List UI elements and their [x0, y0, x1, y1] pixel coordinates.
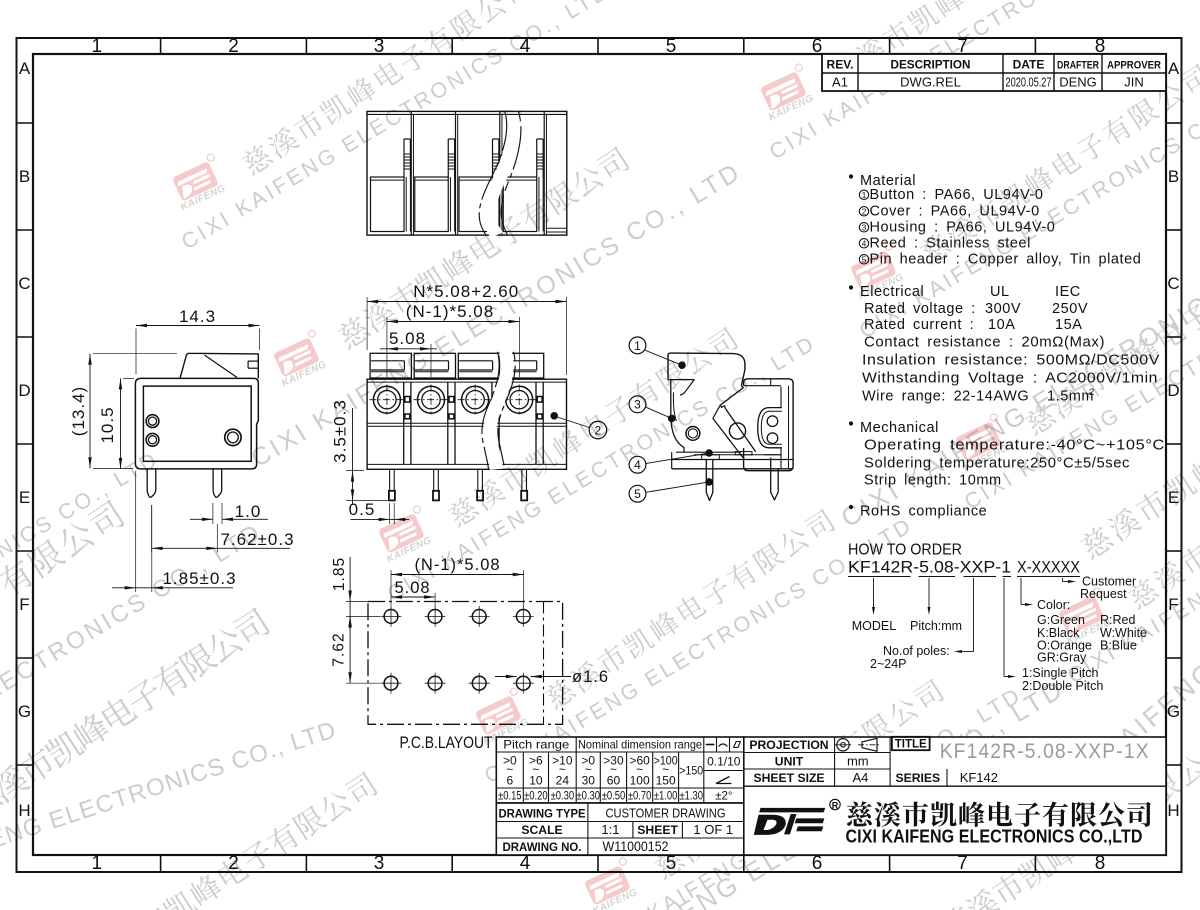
svg-text:6: 6 [812, 36, 823, 57]
svg-text:5.08: 5.08 [389, 329, 426, 348]
svg-text:0.5: 0.5 [349, 500, 376, 519]
svg-text:SHEET: SHEET [637, 823, 678, 837]
svg-text:>150: >150 [679, 764, 703, 778]
svg-text:15A: 15A [1055, 317, 1082, 333]
svg-text:DENG: DENG [1059, 75, 1097, 90]
svg-text:10.5: 10.5 [98, 406, 117, 443]
svg-text:IEC: IEC [1055, 284, 1081, 300]
svg-text:A: A [1168, 59, 1180, 78]
svg-text:MODEL: MODEL [852, 619, 897, 633]
svg-text:H: H [18, 801, 30, 820]
svg-text:250V: 250V [1052, 301, 1088, 317]
svg-text:±1.00: ±1.00 [654, 791, 678, 803]
svg-text:Reed : Stainless steel: Reed : Stainless steel [870, 236, 1031, 252]
svg-text:E: E [1168, 488, 1179, 507]
svg-text:Electrical: Electrical [860, 284, 924, 300]
svg-text:7: 7 [957, 853, 968, 874]
svg-text:R:Red: R:Red [1100, 613, 1135, 627]
svg-text:DWG.REL: DWG.REL [900, 75, 961, 90]
svg-text:JIN: JIN [1124, 75, 1144, 90]
svg-text:UNIT: UNIT [775, 755, 804, 769]
svg-text:±0.30: ±0.30 [577, 791, 601, 803]
svg-text:2: 2 [1089, 387, 1094, 398]
svg-text:Rated voltage :: Rated voltage : [864, 301, 976, 317]
svg-text:(13.4): (13.4) [69, 386, 88, 436]
svg-text:Contact resistance : 20mΩ(Max): Contact resistance : 20mΩ(Max) [864, 335, 1105, 351]
svg-text:B: B [1168, 167, 1179, 186]
svg-text:5: 5 [666, 853, 677, 874]
svg-text:10: 10 [529, 774, 543, 788]
svg-text:Nominal dimension range: Nominal dimension range [578, 738, 702, 752]
svg-text:Request: Request [1080, 587, 1127, 601]
svg-text:Pitch range: Pitch range [503, 738, 569, 752]
svg-text:1: 1 [634, 339, 641, 353]
svg-text:UL: UL [990, 284, 1010, 300]
svg-text:RoHS compliance: RoHS compliance [860, 504, 987, 520]
svg-text:Insulation resistance: 500MΩ/D: Insulation resistance: 500MΩ/DC500V [862, 353, 1160, 369]
svg-text:Soldering temperature:250°C±5/: Soldering temperature:250°C±5/5sec [864, 456, 1130, 472]
svg-text:3: 3 [374, 853, 385, 874]
svg-text:4: 4 [520, 36, 531, 57]
svg-text:60: 60 [607, 774, 621, 788]
svg-text:DATE: DATE [1013, 58, 1045, 72]
svg-text:7.62: 7.62 [331, 632, 348, 666]
svg-text:±0.15: ±0.15 [498, 791, 522, 803]
svg-text:2~24P: 2~24P [870, 657, 907, 671]
svg-text:Rated current :: Rated current : [864, 317, 974, 333]
svg-text:C: C [18, 274, 30, 293]
svg-text:±2°: ±2° [715, 791, 732, 803]
svg-text:KF142: KF142 [960, 770, 998, 785]
svg-text:150: 150 [656, 774, 676, 788]
svg-text:2:Double Pitch: 2:Double Pitch [1022, 679, 1103, 693]
svg-text:G: G [18, 702, 31, 721]
svg-text:SERIES: SERIES [895, 771, 940, 785]
svg-text:F: F [1168, 595, 1178, 614]
svg-text:3: 3 [374, 36, 385, 57]
svg-text:1.0: 1.0 [235, 502, 262, 521]
svg-text:1 OF 1: 1 OF 1 [693, 822, 733, 837]
svg-text:Operating temperature:-40°C~+1: Operating temperature:-40°C~+105°C [864, 438, 1165, 454]
svg-text:2: 2 [228, 853, 239, 874]
svg-text:2: 2 [228, 36, 239, 57]
svg-text:SCALE: SCALE [521, 823, 562, 837]
svg-text:1: 1 [92, 36, 103, 57]
svg-text:KF142R-5.08-XXP-1: KF142R-5.08-XXP-1 [848, 558, 1011, 577]
svg-text:HOW TO ORDER: HOW TO ORDER [848, 542, 962, 559]
svg-text:DRAWING TYPE: DRAWING TYPE [499, 807, 586, 821]
svg-text:A: A [19, 59, 31, 78]
svg-text:D: D [1167, 381, 1179, 400]
svg-text:100: 100 [630, 774, 650, 788]
svg-text:A1: A1 [832, 75, 848, 90]
svg-text:KF142R-5.08-XXP-1X: KF142R-5.08-XXP-1X [940, 740, 1150, 763]
svg-text:±0.30: ±0.30 [551, 791, 575, 803]
svg-text:DRAWING NO.: DRAWING NO. [503, 840, 582, 854]
svg-text:CIXI KAIFENG ELECTRONICS CO.,L: CIXI KAIFENG ELECTRONICS CO.,LTD [846, 826, 1143, 847]
svg-text:E: E [19, 488, 30, 507]
svg-text:D: D [18, 381, 30, 400]
svg-text:(N-1)*5.08: (N-1)*5.08 [414, 556, 500, 574]
svg-text:SHEET SIZE: SHEET SIZE [753, 771, 824, 785]
svg-text:7.62±0.3: 7.62±0.3 [220, 530, 294, 549]
svg-text:CUSTOMER DRAWING: CUSTOMER DRAWING [606, 806, 726, 821]
svg-text:1:Single Pitch: 1:Single Pitch [1022, 666, 1098, 680]
svg-text:APPROVER: APPROVER [1107, 60, 1161, 72]
svg-text:X-XXXXX: X-XXXXX [1017, 558, 1080, 577]
svg-text:±1.30: ±1.30 [679, 791, 703, 803]
svg-text:2: 2 [595, 424, 602, 438]
svg-text:Strip length: 10mm: Strip length: 10mm [864, 473, 1002, 489]
svg-text:5: 5 [666, 36, 677, 57]
svg-text:Button : PA66, UL94V-0: Button : PA66, UL94V-0 [870, 187, 1044, 203]
svg-text:3: 3 [862, 222, 867, 232]
svg-text:Cover : PA66, UL94V-0: Cover : PA66, UL94V-0 [870, 204, 1040, 220]
svg-text:2: 2 [862, 206, 867, 216]
svg-text:GR:Gray: GR:Gray [1037, 651, 1087, 665]
svg-text:1.85±0.3: 1.85±0.3 [162, 569, 236, 588]
svg-text:5: 5 [634, 487, 641, 501]
svg-text:DRAFTER: DRAFTER [1057, 60, 1099, 72]
svg-text:ø1.6: ø1.6 [572, 668, 609, 686]
svg-text:±0.50: ±0.50 [602, 791, 626, 803]
svg-text:1.85: 1.85 [331, 557, 348, 591]
svg-text:1: 1 [862, 190, 867, 200]
svg-text:±0.20: ±0.20 [524, 791, 548, 803]
svg-text:Color:: Color: [1037, 598, 1070, 612]
svg-text:F: F [19, 595, 29, 614]
svg-text:G: G [1167, 702, 1180, 721]
svg-text:4: 4 [862, 238, 867, 248]
svg-text:6: 6 [506, 774, 513, 788]
svg-text:30: 30 [582, 774, 596, 788]
svg-text:±0.70: ±0.70 [628, 791, 652, 803]
svg-text:4: 4 [520, 853, 531, 874]
svg-text:A4: A4 [852, 770, 868, 785]
svg-text:1:1: 1:1 [601, 822, 619, 837]
svg-text:DESCRIPTION: DESCRIPTION [891, 58, 971, 72]
svg-text:3: 3 [634, 398, 641, 412]
svg-text:1.5mm: 1.5mm [1047, 389, 1094, 405]
svg-text:1: 1 [92, 853, 103, 874]
svg-text:300V: 300V [985, 301, 1021, 317]
svg-text:10A: 10A [988, 317, 1015, 333]
svg-text:Housing : PA66, UL94V-0: Housing : PA66, UL94V-0 [870, 220, 1056, 236]
svg-text:TITLE: TITLE [895, 739, 927, 751]
svg-text:PROJECTION: PROJECTION [749, 738, 828, 752]
svg-text:5: 5 [862, 254, 867, 264]
svg-text:Pitch:mm: Pitch:mm [910, 619, 962, 633]
svg-text:6: 6 [812, 853, 823, 874]
svg-text:5.08: 5.08 [394, 579, 430, 597]
svg-text:B:Blue: B:Blue [1100, 639, 1137, 653]
svg-text:G:Green: G:Green [1037, 613, 1085, 627]
svg-text:8: 8 [1095, 853, 1106, 874]
svg-text:2020.05.27: 2020.05.27 [1006, 76, 1052, 90]
svg-text:Mechanical: Mechanical [860, 420, 939, 436]
svg-text:R: R [832, 800, 839, 810]
svg-text:0.1/10: 0.1/10 [707, 755, 741, 769]
svg-text:24: 24 [556, 774, 570, 788]
svg-text:REV.: REV. [827, 58, 854, 72]
svg-text:W11000152: W11000152 [603, 839, 669, 854]
svg-text:Withstanding Voltage : AC2000V: Withstanding Voltage : AC2000V/1min [862, 371, 1158, 387]
svg-text:14.3: 14.3 [179, 307, 216, 326]
svg-text:3.5±0.3: 3.5±0.3 [331, 399, 350, 463]
svg-text:Wire range: 22-14AWG: Wire range: 22-14AWG [862, 389, 1029, 405]
svg-text:4: 4 [634, 458, 641, 472]
svg-text:mm: mm [847, 754, 869, 769]
svg-text:Pin header : Copper alloy, Tin: Pin header : Copper alloy, Tin plated [870, 252, 1142, 268]
svg-text:N*5.08+2.60: N*5.08+2.60 [413, 282, 519, 301]
svg-text:(N-1)*5.08: (N-1)*5.08 [406, 302, 494, 321]
svg-text:B: B [19, 167, 30, 186]
svg-text:C: C [1167, 274, 1179, 293]
svg-text:P.C.B.LAYOUT: P.C.B.LAYOUT [400, 734, 493, 752]
svg-text:No.of poles:: No.of poles: [883, 644, 950, 658]
svg-text:H: H [1167, 801, 1179, 820]
